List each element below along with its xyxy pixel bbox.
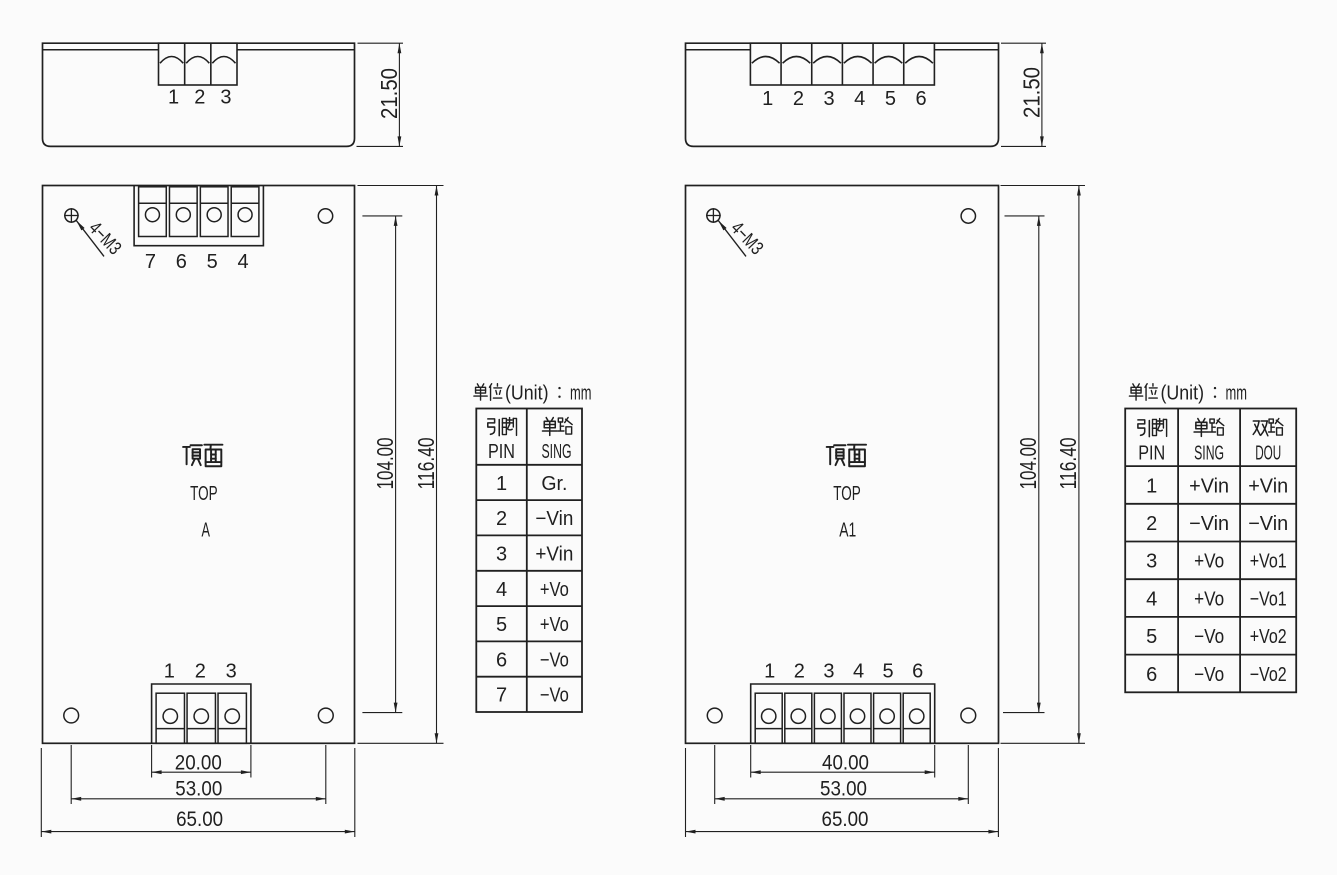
svg-text:65.00: 65.00 bbox=[176, 808, 223, 831]
svg-text:+Vin: +Vin bbox=[1189, 475, 1229, 497]
svg-text:+Vin: +Vin bbox=[1248, 475, 1288, 497]
svg-text:20.00: 20.00 bbox=[175, 751, 222, 774]
svg-text:104.00: 104.00 bbox=[372, 437, 398, 489]
svg-text:+Vo2: +Vo2 bbox=[1250, 626, 1287, 648]
svg-text:−Vo: −Vo bbox=[1194, 626, 1224, 648]
svg-text:1: 1 bbox=[168, 87, 179, 109]
svg-text:+Vin: +Vin bbox=[535, 543, 573, 565]
svg-text:2: 2 bbox=[194, 87, 205, 109]
svg-text:5: 5 bbox=[1146, 626, 1157, 648]
svg-text:65.00: 65.00 bbox=[822, 808, 869, 831]
svg-text:(Unit): (Unit) bbox=[1161, 382, 1205, 404]
svg-text:104.00: 104.00 bbox=[1015, 437, 1041, 489]
svg-text:5: 5 bbox=[207, 251, 218, 273]
svg-text:6: 6 bbox=[176, 251, 187, 273]
svg-text:2: 2 bbox=[496, 508, 507, 530]
svg-text:21.50: 21.50 bbox=[1018, 67, 1044, 118]
svg-text:4: 4 bbox=[496, 579, 507, 601]
svg-text:+Vo: +Vo bbox=[1194, 551, 1224, 573]
svg-text:−Vo2: −Vo2 bbox=[1250, 664, 1287, 686]
svg-text:2: 2 bbox=[1146, 513, 1157, 535]
svg-text:1: 1 bbox=[496, 473, 507, 495]
svg-text:1: 1 bbox=[1146, 475, 1157, 497]
svg-text:3: 3 bbox=[1146, 551, 1157, 573]
svg-text:−Vin: −Vin bbox=[535, 508, 573, 530]
svg-text:1: 1 bbox=[762, 88, 773, 110]
svg-text:+Vo: +Vo bbox=[540, 614, 569, 636]
svg-text:DOU: DOU bbox=[1255, 442, 1281, 464]
svg-text:116.40: 116.40 bbox=[413, 437, 439, 489]
svg-text:7: 7 bbox=[145, 251, 156, 273]
svg-text:6: 6 bbox=[912, 661, 923, 683]
svg-text:4: 4 bbox=[238, 251, 249, 273]
svg-text:+Vo: +Vo bbox=[540, 579, 569, 601]
svg-text:−Vo1: −Vo1 bbox=[1250, 588, 1287, 610]
svg-text:4−M3: 4−M3 bbox=[726, 218, 767, 259]
svg-text:Gr.: Gr. bbox=[541, 473, 567, 495]
svg-text:4: 4 bbox=[853, 661, 864, 683]
svg-text:TOP: TOP bbox=[833, 482, 861, 505]
svg-text:5: 5 bbox=[885, 88, 896, 110]
svg-text:5: 5 bbox=[883, 661, 894, 683]
svg-text:3: 3 bbox=[496, 543, 507, 565]
svg-text:6: 6 bbox=[496, 649, 507, 671]
svg-text:−Vo: −Vo bbox=[540, 649, 569, 671]
svg-text:116.40: 116.40 bbox=[1055, 437, 1081, 489]
svg-text:40.00: 40.00 bbox=[822, 751, 869, 774]
svg-text:7: 7 bbox=[496, 685, 507, 707]
svg-text:−Vin: −Vin bbox=[1248, 513, 1288, 535]
svg-text:2: 2 bbox=[793, 88, 804, 110]
svg-text:21.50: 21.50 bbox=[376, 68, 402, 119]
svg-text:6: 6 bbox=[916, 88, 927, 110]
svg-text:5: 5 bbox=[496, 614, 507, 636]
svg-text:SING: SING bbox=[1194, 442, 1224, 464]
svg-text:53.00: 53.00 bbox=[175, 778, 222, 801]
svg-text:SING: SING bbox=[542, 441, 572, 463]
svg-text:53.00: 53.00 bbox=[820, 778, 867, 801]
svg-text:2: 2 bbox=[794, 661, 805, 683]
svg-text:PIN: PIN bbox=[1138, 442, 1165, 464]
svg-text:−Vin: −Vin bbox=[1189, 513, 1229, 535]
svg-text:3: 3 bbox=[220, 87, 231, 109]
svg-text:3: 3 bbox=[824, 88, 835, 110]
svg-text:−Vo: −Vo bbox=[540, 685, 569, 707]
svg-text:−Vo: −Vo bbox=[1194, 664, 1224, 686]
svg-text:A: A bbox=[202, 518, 211, 541]
svg-text:3: 3 bbox=[823, 661, 834, 683]
svg-text:(Unit): (Unit) bbox=[505, 382, 549, 404]
svg-text:+Vo1: +Vo1 bbox=[1250, 551, 1287, 573]
svg-text:3: 3 bbox=[226, 661, 237, 683]
svg-text:1: 1 bbox=[164, 661, 175, 683]
svg-text:2: 2 bbox=[195, 661, 206, 683]
svg-text:1: 1 bbox=[764, 661, 775, 683]
svg-text:+Vo: +Vo bbox=[1194, 588, 1224, 610]
svg-text:mm: mm bbox=[1226, 382, 1248, 404]
svg-text:6: 6 bbox=[1146, 664, 1157, 686]
svg-text:A1: A1 bbox=[839, 519, 856, 542]
svg-text:4−M3: 4−M3 bbox=[84, 218, 125, 259]
svg-text:4: 4 bbox=[854, 88, 865, 110]
svg-text:4: 4 bbox=[1146, 588, 1157, 610]
svg-text:TOP: TOP bbox=[190, 482, 218, 505]
svg-text:PIN: PIN bbox=[488, 441, 515, 463]
svg-text:mm: mm bbox=[570, 382, 592, 404]
